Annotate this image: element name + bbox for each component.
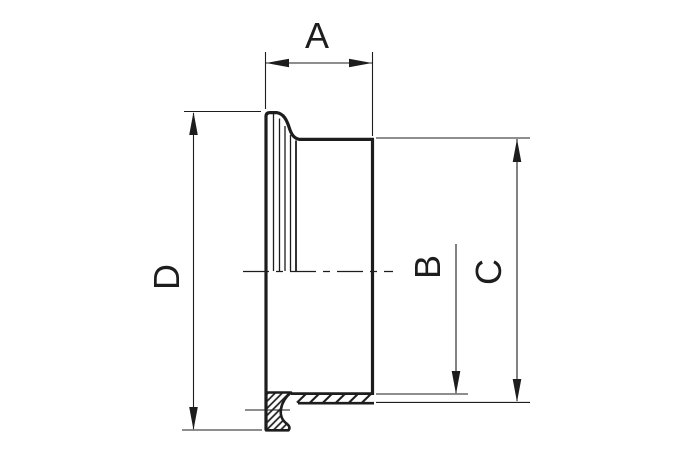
dim-d-arrow-top xyxy=(189,112,198,135)
dimension-d: D xyxy=(146,112,262,431)
dim-c-arrow-top xyxy=(513,139,522,162)
technical-drawing-canvas: A D B C xyxy=(0,0,690,466)
dim-c-label: C xyxy=(468,259,509,285)
dim-b-arrow-bottom xyxy=(452,371,461,394)
dim-a-arrow-right xyxy=(349,59,372,67)
dim-d-arrow-bottom xyxy=(189,407,198,430)
dim-b-label: B xyxy=(407,255,448,279)
dimension-c: C xyxy=(376,138,530,402)
weld-bead-section xyxy=(266,393,291,431)
dim-a-label: A xyxy=(305,15,329,56)
dim-d-label: D xyxy=(146,264,187,290)
section-wall-hatch xyxy=(297,394,371,402)
dimension-a: A xyxy=(266,15,373,136)
fitting-section-drawing: A D B C xyxy=(0,0,690,466)
dim-c-arrow-bottom xyxy=(513,379,522,402)
dim-a-arrow-left xyxy=(266,59,289,67)
dimension-b: B xyxy=(376,244,468,394)
